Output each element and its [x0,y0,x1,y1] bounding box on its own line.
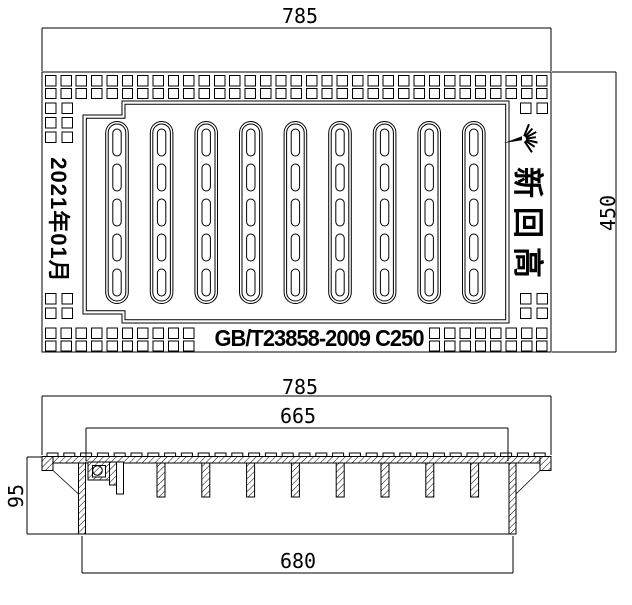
dim-label-section-bottom-width: 680 [268,550,328,572]
grate-bar [240,122,263,304]
drain-slot [425,164,433,191]
drain-slot [157,234,165,261]
dim-label-top-width: 785 [270,5,330,27]
drain-slot [336,269,344,296]
drain-slot [113,164,121,191]
drain-slot [470,234,478,261]
drain-slot [380,129,388,156]
grate-bar [418,122,441,304]
cast-date-text: 2021年01月 [45,148,71,292]
dim-label-section-top-width: 785 [270,376,330,398]
drain-slot [202,129,210,156]
drawing-linework [0,0,632,605]
drain-slot [380,234,388,261]
drain-slot [291,129,299,156]
drain-slot [291,199,299,226]
gully-grate-drawing: 785 450 2021年01月 新回高 GB/T23858-2009 C250… [0,0,632,605]
drain-slot [202,199,210,226]
drain-slot [157,269,165,296]
drain-slot [202,164,210,191]
grate-bar [329,122,352,304]
drain-slot [157,129,165,156]
drain-slot [247,199,255,226]
drain-slot [113,199,121,226]
drain-slot [336,234,344,261]
grate-bar [463,122,486,304]
drain-slot [113,234,121,261]
grate-bar [106,122,129,304]
drain-slot [157,199,165,226]
drain-slot [380,269,388,296]
standard-class-text: GB/T23858-2009 C250 [210,325,429,351]
drain-slot [291,164,299,191]
section-view-geometry [42,453,551,534]
brand-text: 新回高 [509,164,545,290]
drain-slot [291,234,299,261]
drain-slot [113,269,121,296]
drain-slot [425,269,433,296]
drain-slot [247,129,255,156]
dim-label-section-inner-width: 665 [268,405,328,427]
dim-label-section-depth: 95 [5,471,27,521]
drain-slot [336,129,344,156]
grate-bar [150,122,173,304]
top-view-geometry [42,72,551,352]
drain-slot [425,129,433,156]
drain-slot [336,199,344,226]
drain-slot [202,234,210,261]
drain-slot [380,199,388,226]
drain-slot [336,164,344,191]
dim-label-height: 450 [597,188,619,238]
grate-bar [284,122,307,304]
drain-slot [247,164,255,191]
grate-bar [195,122,218,304]
drain-slot [470,164,478,191]
drain-slot [291,269,299,296]
drain-slot [202,269,210,296]
drain-slot [425,199,433,226]
drain-slot [247,269,255,296]
drain-slot [247,234,255,261]
drain-slot [157,164,165,191]
drain-slot [470,269,478,296]
drain-slot [425,234,433,261]
grate-bar [373,122,396,304]
drain-slot [113,129,121,156]
drain-slot [380,164,388,191]
drain-slot [470,199,478,226]
drain-slot [470,129,478,156]
